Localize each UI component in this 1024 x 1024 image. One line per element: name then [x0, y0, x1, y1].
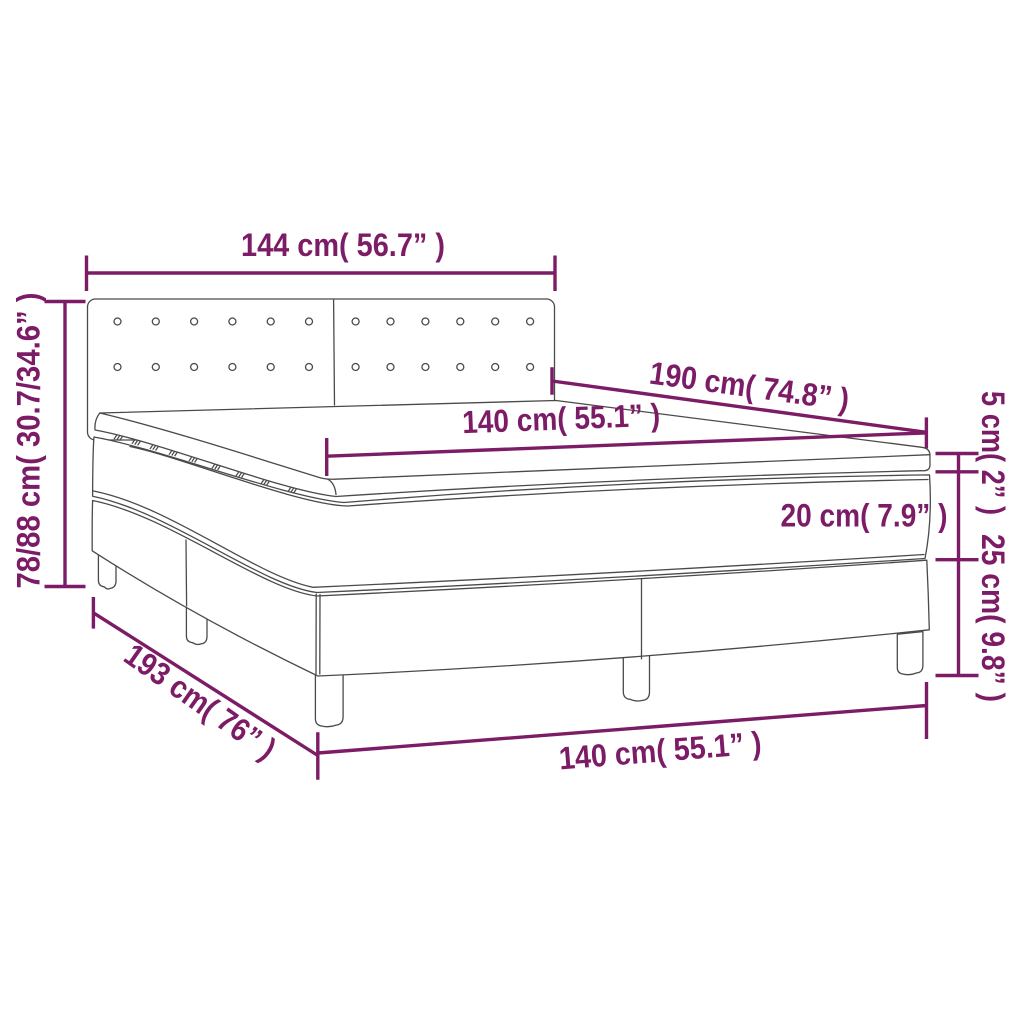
- svg-text:25 cm( 9.8” ): 25 cm( 9.8” ): [975, 534, 1011, 702]
- svg-text:78/88 cm( 30.7/34.6” ): 78/88 cm( 30.7/34.6” ): [11, 293, 47, 589]
- svg-text:20 cm( 7.9” ): 20 cm( 7.9” ): [781, 498, 948, 534]
- svg-text:5 cm( 2” ): 5 cm( 2” ): [975, 391, 1011, 515]
- svg-text:140 cm( 55.1” ): 140 cm( 55.1” ): [461, 397, 660, 441]
- svg-text:144 cm( 56.7” ): 144 cm( 56.7” ): [241, 227, 445, 263]
